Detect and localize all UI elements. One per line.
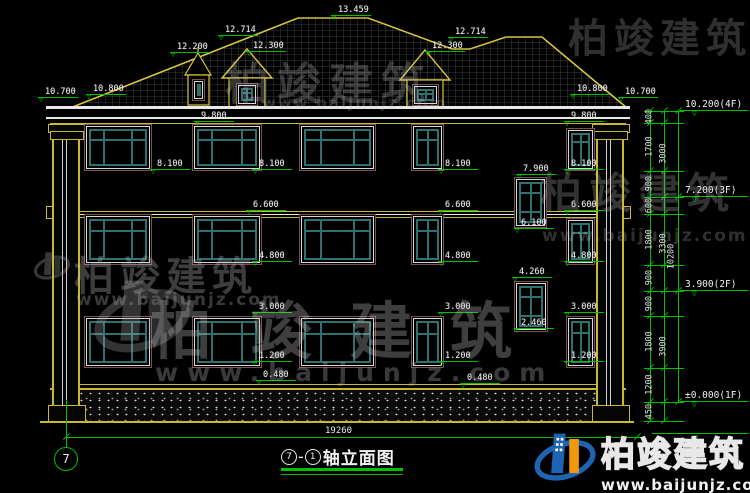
window-pane (521, 288, 530, 296)
elevation-mark-line (38, 97, 78, 98)
elevation-mark-triangle: ▽ (571, 94, 575, 101)
dim-chain-mid-label: 3900 (660, 324, 669, 368)
elevation-mark-triangle: ▽ (565, 121, 569, 128)
elevation-mark: 12.200 ▽ (170, 43, 212, 53)
window-pane (418, 335, 427, 361)
window-pane (306, 323, 320, 333)
elevation-mark: 4.260 ▽ (512, 268, 554, 278)
window-pane (573, 135, 580, 141)
window-pane (418, 232, 427, 258)
window-pane (429, 141, 438, 164)
window-frame (86, 126, 150, 169)
cad-elevation-drawing: 19260 7 7 - 1 轴立面图 10200 ▽ 柏竣建筑 www.baij… (0, 0, 750, 493)
elevation-mark-triangle: ▽ (253, 361, 257, 368)
elevation-value: 0.480 (467, 374, 502, 383)
elevation-mark: 12.714 ▽ (218, 26, 260, 36)
elevation-mark-triangle: ▽ (247, 210, 251, 217)
axis-circle-from: 7 (281, 449, 297, 465)
elevation-mark: 8.100 ▽ (438, 160, 480, 170)
elevation-mark-line (438, 261, 478, 262)
window-frame (301, 318, 374, 366)
window-pane (91, 323, 103, 333)
elevation-mark-line (86, 94, 126, 95)
dim-value: 3900 (659, 336, 669, 356)
elevation-mark-line (564, 261, 604, 262)
elevation-mark-triangle: ▽ (257, 380, 261, 387)
window-pane (243, 94, 246, 99)
elevation-mark-triangle: ▽ (439, 169, 443, 176)
window-pane (429, 221, 438, 230)
window-pane (582, 135, 589, 141)
window-mullions (197, 129, 257, 166)
window-pane (199, 221, 211, 230)
dim-value: 900 (645, 295, 655, 310)
title-text: 轴立面图 (323, 444, 395, 469)
elevation-value: 12.200 (177, 43, 212, 52)
elevation-mark: 1.200 ▽ (564, 352, 606, 362)
window-pane (105, 141, 132, 164)
window-pane (243, 131, 255, 139)
elevation-mark: 10.700 ▽ (618, 88, 660, 98)
window-mullions (304, 219, 371, 260)
window-pane (213, 131, 241, 139)
elevation-mark-line (438, 169, 478, 170)
elevation-mark: 8.100 ▽ (252, 160, 294, 170)
elevation-value: 8.100 (445, 160, 480, 169)
eave-fascia-bottom (46, 117, 630, 119)
elevation-mark-line (618, 97, 658, 98)
window-pane (243, 323, 255, 333)
window-pane (355, 221, 369, 230)
elevation-mark-triangle: ▽ (513, 277, 517, 284)
ground-line (40, 421, 634, 423)
elevation-value: 6.600 (253, 201, 288, 210)
window-mullions (197, 84, 201, 96)
elevation-mark-line (246, 210, 286, 211)
elevation-mark-line (170, 52, 210, 53)
window-pane (521, 194, 530, 211)
axis-bubble-7: 7 (54, 447, 78, 471)
elevation-mark-triangle: ▽ (171, 52, 175, 59)
elevation-value: 4.260 (519, 268, 554, 277)
window-pane (521, 298, 530, 315)
elevation-mark-triangle: ▽ (332, 15, 336, 22)
elevation-value: 10.700 (45, 88, 80, 97)
elevation-mark: 0.480 ▽ (256, 371, 298, 381)
elevation-mark-triangle: ▽ (39, 97, 43, 104)
elevation-mark: 7.900 ▽ (516, 165, 558, 175)
window-pane (248, 90, 251, 92)
level-line (680, 196, 748, 197)
window-pane (418, 323, 427, 333)
elevation-mark-line (564, 121, 604, 122)
elevation-value: 6.600 (445, 201, 480, 210)
dim-value: 3000 (659, 143, 669, 163)
level-triangle: ▽ (692, 290, 697, 298)
window-pane (243, 90, 246, 92)
window-pane (418, 131, 427, 139)
elevation-value: 4.800 (259, 252, 294, 261)
window-pane (306, 221, 320, 230)
elevation-value: 4.800 (571, 252, 606, 261)
elevation-mark: 0.480 ▽ (460, 374, 502, 384)
elevation-mark-line (564, 169, 604, 170)
elevation-mark: 4.800 ▽ (252, 252, 294, 262)
window-mullions (519, 182, 542, 223)
elevation-mark-triangle: ▽ (565, 210, 569, 217)
window-pane (322, 232, 354, 258)
window-pane (322, 141, 354, 164)
elevation-value: 13.459 (338, 6, 373, 15)
level-line (680, 290, 748, 291)
dim-chain-line-3 (678, 111, 679, 402)
elevation-value: 12.714 (455, 28, 490, 37)
level-line (680, 401, 748, 402)
dim-value: 1800 (645, 331, 655, 351)
window-pane (355, 323, 369, 333)
window-mullions (416, 129, 439, 166)
window-pane (213, 323, 241, 333)
elevation-mark: 1.200 ▽ (252, 352, 294, 362)
elevation-mark-line (438, 361, 478, 362)
window-pane (199, 131, 211, 139)
elevation-value: 1.200 (259, 352, 294, 361)
window-pane (199, 141, 211, 164)
elevation-value: 1.200 (445, 352, 480, 361)
window-pane (429, 131, 438, 139)
elevation-value: 2.460 (521, 319, 556, 328)
elevation-mark-line (252, 261, 292, 262)
elevation-mark: 8.100 ▽ (564, 160, 606, 170)
elevation-mark-line (564, 361, 604, 362)
brand-logo-icon (533, 427, 597, 485)
window-mullions (416, 219, 439, 260)
window-pane (521, 184, 530, 192)
elevation-mark-line (150, 169, 190, 170)
level-callout: 7.200(3F) ▽ (680, 186, 750, 197)
elevation-mark-line (514, 228, 554, 229)
pilaster-left-capital2 (50, 131, 84, 140)
window-pane (573, 323, 580, 332)
elevation-mark-triangle: ▽ (565, 169, 569, 176)
elevation-mark: 6.100 ▽ (514, 219, 556, 229)
level-callout: 3.900(2F) ▽ (680, 280, 750, 291)
elevation-mark: 3.000 ▽ (564, 303, 606, 313)
title-underline-thick (281, 468, 403, 471)
window (84, 124, 152, 171)
window-pane (199, 335, 211, 361)
elevation-mark: 3.000 ▽ (252, 303, 294, 313)
window-pane (306, 131, 320, 139)
elevation-mark-line (252, 361, 292, 362)
pilaster-right (596, 138, 624, 405)
elevation-mark-line (448, 37, 488, 38)
window (299, 316, 376, 368)
window-pane (91, 335, 103, 361)
window-pane (573, 225, 580, 232)
elevation-mark-line (564, 210, 604, 211)
window-pane (429, 335, 438, 361)
window-pane (213, 335, 241, 361)
elevation-mark: 4.800 ▽ (438, 252, 480, 262)
level-triangle: ▽ (692, 401, 697, 409)
window (412, 84, 439, 106)
window-pane (306, 141, 320, 164)
window-pane (105, 335, 132, 361)
window-mullions (304, 129, 371, 166)
elevation-value: 12.300 (253, 42, 288, 51)
window-pane (213, 221, 241, 230)
elevation-mark-triangle: ▽ (253, 169, 257, 176)
elevation-mark-line (331, 15, 371, 16)
elevation-mark-triangle: ▽ (439, 361, 443, 368)
elevation-mark-line (252, 169, 292, 170)
window-pane (91, 131, 103, 139)
window-mullions (197, 219, 257, 260)
elevation-mark: 6.600 ▽ (246, 201, 288, 211)
window-pane (105, 221, 132, 230)
window-frame (194, 126, 260, 169)
elevation-mark: 10.800 ▽ (570, 85, 612, 95)
window-pane (532, 184, 541, 192)
window-pane (91, 221, 103, 230)
axis-number: 7 (62, 452, 69, 466)
elevation-mark-line (438, 312, 478, 313)
elevation-mark: 9.800 ▽ (564, 112, 606, 122)
elevation-mark: 12.300 ▽ (246, 42, 288, 52)
window-pane (105, 232, 132, 258)
window-pane (355, 131, 369, 139)
level-callout: 10.200(4F) ▽ (680, 100, 750, 111)
elevation-mark-triangle: ▽ (219, 35, 223, 42)
elevation-value: 0.480 (263, 371, 298, 380)
window-pane (306, 232, 320, 258)
elevation-mark-triangle: ▽ (439, 210, 443, 217)
elevation-mark-line (564, 312, 604, 313)
window-frame (301, 216, 374, 263)
elevation-mark: 12.300 ▽ (425, 42, 467, 52)
elevation-mark: 6.600 ▽ (564, 201, 606, 211)
elevation-mark-triangle: ▽ (195, 121, 199, 128)
window-pane (213, 232, 241, 258)
elevation-mark: 9.800 ▽ (194, 112, 236, 122)
overall-width-dim: 19260 (325, 426, 352, 436)
window-pane (248, 94, 251, 99)
elevation-mark: 10.800 ▽ (86, 85, 128, 95)
window-frame (194, 81, 203, 99)
window-mullions (89, 219, 147, 260)
elevation-value: 3.000 (445, 303, 480, 312)
elevation-mark-line (514, 328, 554, 329)
level-triangle: ▽ (692, 196, 697, 204)
window-pane (105, 323, 132, 333)
brand-logo: 柏竣建筑 www.baijunjz.com (533, 427, 750, 493)
elevation-value: 6.600 (571, 201, 606, 210)
dim-chain-inner-label: 1800 (646, 320, 655, 364)
elevation-mark-triangle: ▽ (439, 312, 443, 319)
elevation-mark: 1.200 ▽ (438, 352, 480, 362)
window-mullions (304, 321, 371, 363)
elevation-value: 1.200 (571, 352, 606, 361)
window-pane (91, 232, 103, 258)
elevation-mark-triangle: ▽ (461, 383, 465, 390)
pilaster-left (52, 138, 80, 405)
elevation-mark-triangle: ▽ (439, 261, 443, 268)
window (192, 79, 205, 101)
window-mullions (241, 88, 253, 101)
window-frame (194, 216, 260, 263)
elevation-value: 10.800 (93, 85, 128, 94)
window-pane (133, 221, 145, 230)
window-pane (322, 221, 354, 230)
elevation-mark: 8.100 ▽ (150, 160, 192, 170)
pilaster-flute (62, 138, 67, 405)
window (84, 316, 152, 368)
elevation-value: 10.700 (625, 88, 660, 97)
elevation-mark-triangle: ▽ (449, 37, 453, 44)
elevation-mark-triangle: ▽ (247, 51, 251, 58)
level-triangle: ▽ (692, 110, 697, 118)
elevation-value: 10.800 (577, 85, 612, 94)
dim-chain-inner-label: 1800 (646, 217, 655, 261)
window-pane (532, 288, 541, 296)
window-mullions (89, 129, 147, 166)
elevation-value: 8.100 (157, 160, 192, 169)
window-pane (105, 131, 132, 139)
eave-fascia-top (46, 106, 630, 109)
window-frame (238, 85, 256, 104)
window-frame (194, 318, 260, 366)
window-pane (322, 131, 354, 139)
window-mullions (197, 321, 257, 363)
window-pane (322, 323, 354, 333)
elevation-mark-triangle: ▽ (87, 94, 91, 101)
title-dash: - (298, 447, 304, 466)
elevation-mark-line (246, 51, 286, 52)
elevation-mark-line (256, 380, 296, 381)
window-pane (427, 91, 433, 93)
window-pane (133, 131, 145, 139)
roof-outline (70, 18, 627, 108)
drawing-title: 7 - 1 轴立面图 (281, 444, 395, 469)
elevation-mark-line (438, 210, 478, 211)
elevation-mark-line (425, 51, 465, 52)
window-pane (213, 141, 241, 164)
level-line (680, 110, 748, 111)
window-pane (429, 232, 438, 258)
window-pane (133, 335, 145, 361)
elevation-value: 9.800 (571, 112, 606, 121)
elevation-mark-triangle: ▽ (515, 328, 519, 335)
elevation-value: 3.000 (571, 303, 606, 312)
elevation-value: 9.800 (201, 112, 236, 121)
elevation-value: 4.800 (445, 252, 480, 261)
window-pane (199, 232, 211, 258)
elevation-mark: 2.460 ▽ (514, 319, 556, 329)
pilaster-flute (606, 138, 611, 405)
window-pane (322, 335, 354, 361)
plinth-top-line (57, 384, 618, 385)
window-pane (419, 91, 425, 93)
elevation-value: 8.100 (259, 160, 294, 169)
window-pane (532, 298, 541, 315)
window-pane (306, 335, 320, 361)
window-pane (418, 141, 427, 164)
window-mullions (416, 321, 439, 363)
window (84, 214, 152, 265)
window-mullions (89, 321, 147, 363)
window-mullions (417, 89, 434, 101)
window-pane (199, 323, 211, 333)
elevation-mark: 13.459 ▽ (331, 6, 373, 16)
plinth-stone-band (50, 388, 626, 423)
elevation-mark-line (218, 35, 258, 36)
pilaster-right-capital2 (594, 131, 628, 140)
elevation-mark: 6.600 ▽ (438, 201, 480, 211)
total-height-dim: 10200 (668, 235, 677, 279)
window-pane (582, 225, 589, 232)
elevation-value: 3.000 (259, 303, 294, 312)
elevation-value: 7.900 (523, 165, 558, 174)
elevation-mark-triangle: ▽ (253, 312, 257, 319)
window-pane (419, 95, 425, 99)
elevation-mark-line (512, 277, 552, 278)
elevation-mark-triangle: ▽ (515, 228, 519, 235)
window (299, 124, 376, 171)
level-callout: ±0.000(1F) ▽ (680, 391, 750, 402)
window (236, 83, 258, 106)
elevation-mark-triangle: ▽ (426, 51, 430, 58)
elevation-mark-triangle: ▽ (565, 261, 569, 268)
elevation-mark: 12.714 ▽ (448, 28, 490, 38)
elevation-mark-triangle: ▽ (253, 261, 257, 268)
elevation-mark-line (194, 121, 234, 122)
dim-value: 3300 (659, 233, 669, 253)
window-frame (414, 86, 437, 104)
elevation-mark-triangle: ▽ (565, 312, 569, 319)
window (299, 214, 376, 265)
elevation-mark: 4.800 ▽ (564, 252, 606, 262)
elevation-mark-line (460, 383, 500, 384)
window-pane (133, 323, 145, 333)
elevation-value: 12.714 (225, 26, 260, 35)
window-pane (133, 141, 145, 164)
elevation-value: 8.100 (571, 160, 606, 169)
elevation-mark-triangle: ▽ (565, 361, 569, 368)
axis-circle-to: 1 (305, 449, 321, 465)
elevation-mark-line (516, 174, 556, 175)
dim-value: 1700 (645, 136, 655, 156)
title-underline-thin (281, 474, 403, 475)
brand-name: 柏竣建筑 (601, 427, 750, 476)
elevation-mark: 3.000 ▽ (438, 303, 480, 313)
brand-url: www.baijunjz.com (601, 476, 750, 493)
elevation-mark: 10.700 ▽ (38, 88, 80, 98)
window-pane (355, 141, 369, 164)
window-pane (243, 221, 255, 230)
window-frame (86, 318, 150, 366)
window-frame (86, 216, 150, 263)
window-pane (355, 232, 369, 258)
elevation-mark-line (570, 94, 610, 95)
window-pane (133, 232, 145, 258)
window-pane (532, 194, 541, 211)
elevation-mark-line (252, 312, 292, 313)
dim-value: 1800 (645, 229, 655, 249)
elevation-mark-triangle: ▽ (151, 169, 155, 176)
window-pane (427, 95, 433, 99)
dim-chain-mid-label: 3300 (660, 222, 669, 266)
